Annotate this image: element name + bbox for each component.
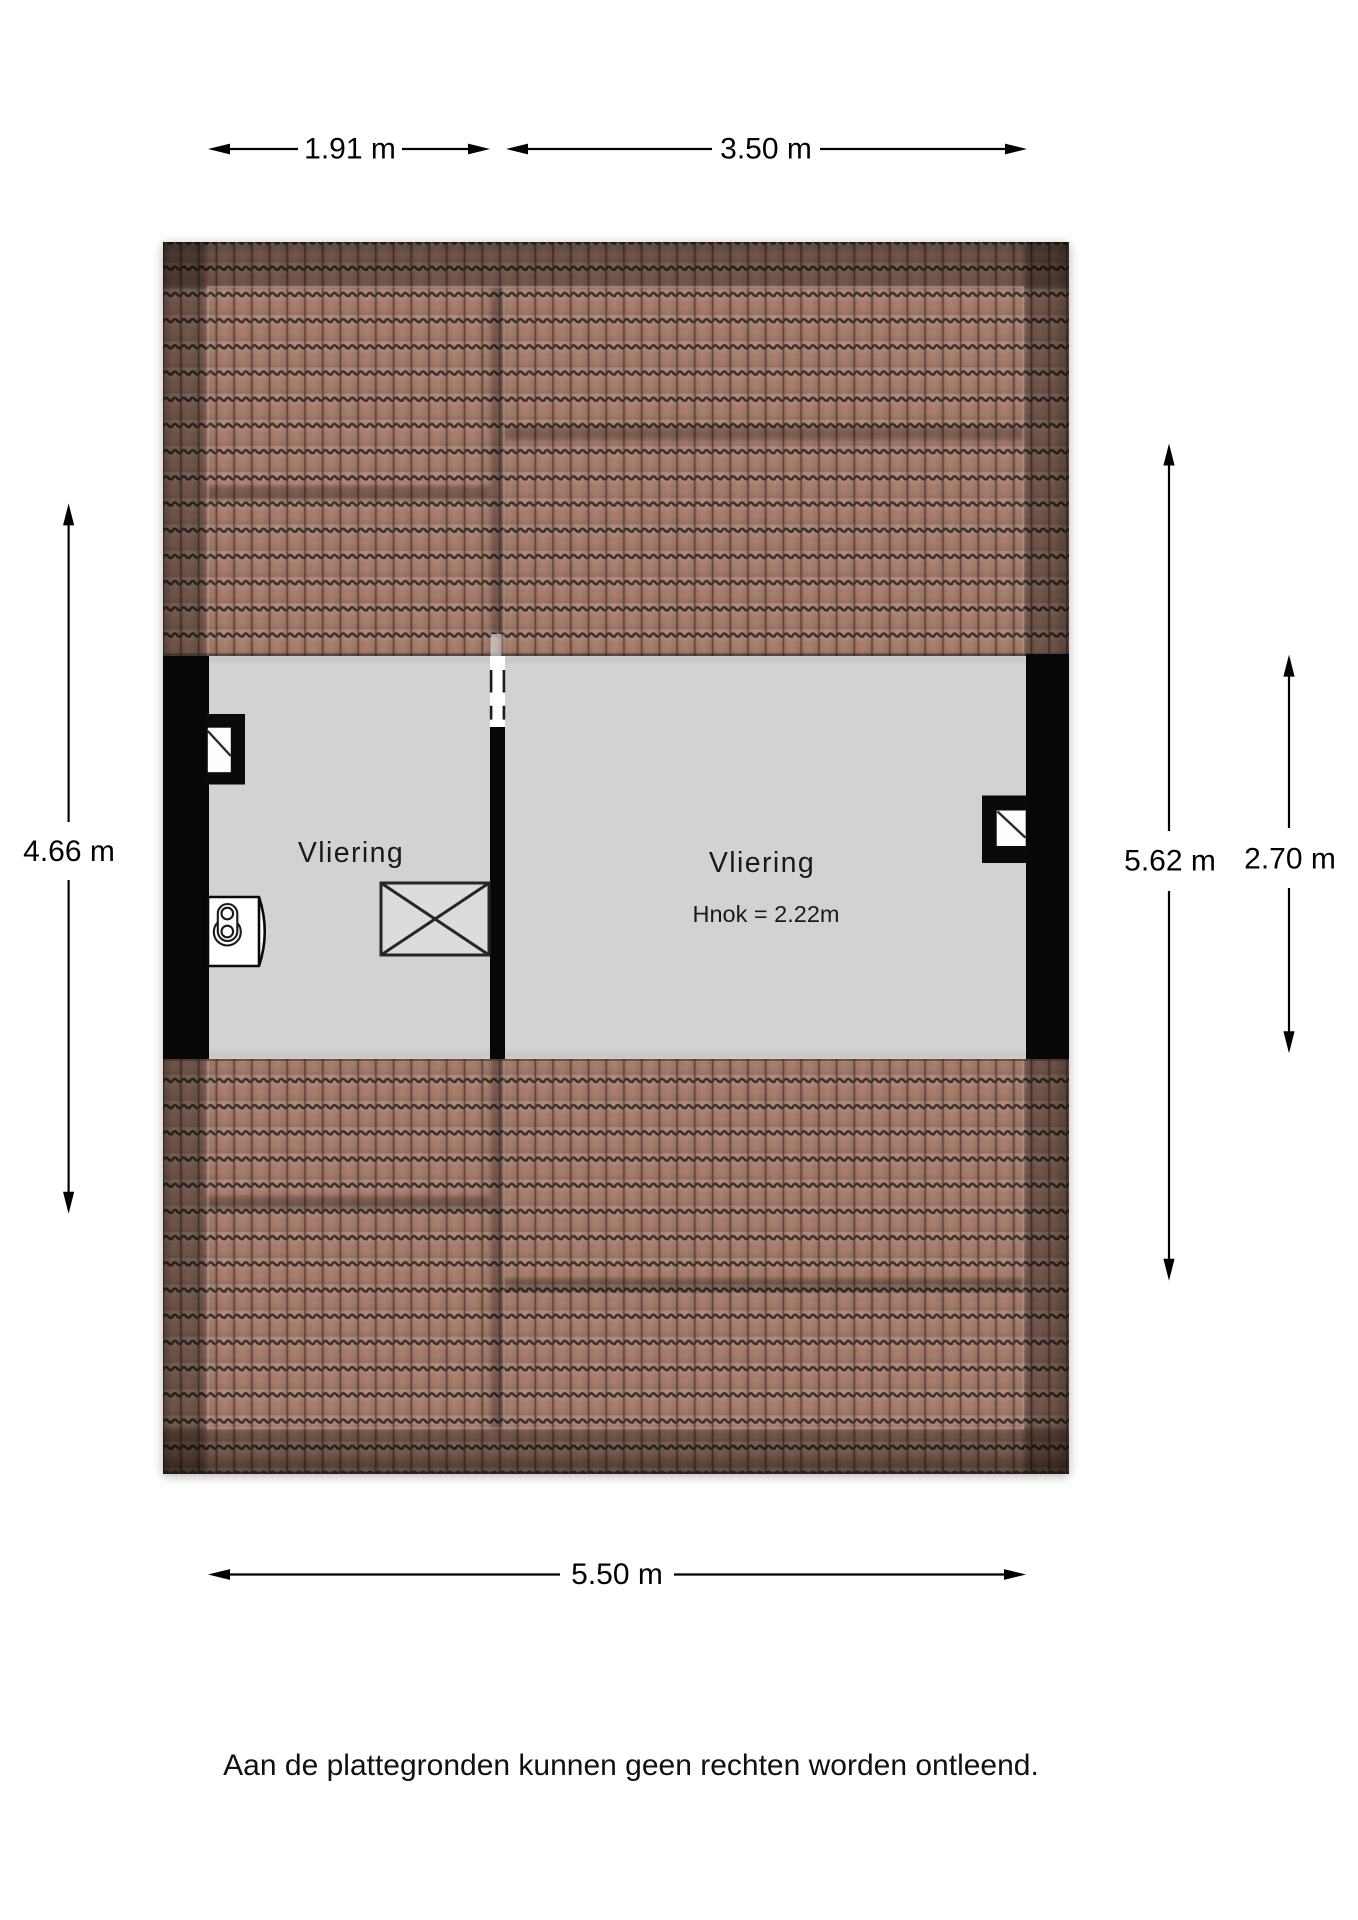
svg-text:Vliering: Vliering bbox=[709, 847, 815, 879]
svg-text:1.91 m: 1.91 m bbox=[304, 133, 396, 166]
svg-text:3.50 m: 3.50 m bbox=[720, 133, 812, 166]
svg-text:5.62 m: 5.62 m bbox=[1124, 845, 1216, 878]
svg-text:5.50 m: 5.50 m bbox=[571, 1558, 663, 1591]
svg-text:4.66 m: 4.66 m bbox=[23, 835, 115, 868]
svg-text:Hnok = 2.22m: Hnok = 2.22m bbox=[693, 901, 840, 927]
svg-text:Aan de plattegronden kunnen ge: Aan de plattegronden kunnen geen rechten… bbox=[223, 1749, 1039, 1782]
svg-text:Vliering: Vliering bbox=[298, 837, 404, 869]
svg-text:2.70 m: 2.70 m bbox=[1244, 842, 1336, 875]
